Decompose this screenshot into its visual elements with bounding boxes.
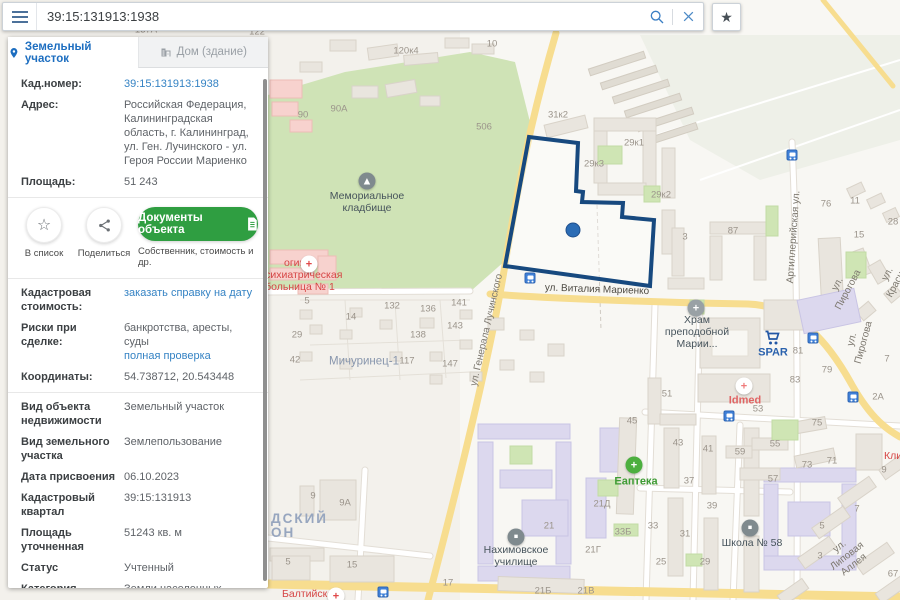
add-to-list-label: В список [25,248,63,259]
field-value-text: Земли населенных пунктов [124,582,255,588]
field-value: Земли населенных пунктов [118,582,255,588]
field-value-text: Землепользование [124,435,255,449]
spar-cart-icon[interactable] [764,330,781,347]
field-value-text: Российская Федерация, Калининградская об… [124,98,255,168]
field-value: Учтенный [118,561,255,575]
field-label: Площадь: [21,175,118,189]
field-row: Кад.номер:39:15:131913:1938 [8,70,268,91]
panel-scrollbar[interactable] [263,79,267,581]
field-value: Землепользование [118,435,255,463]
field-value: заказать справку на дату [118,286,255,314]
field-label: Категория земель [21,582,118,588]
add-to-list-button[interactable]: ☆ В список [18,207,70,259]
field-label: Кадастровая стоимость: [21,286,118,314]
clinic-cross-icon[interactable]: + [328,588,345,600]
field-value: 51 243 [118,175,255,189]
field-value-text: Учтенный [124,561,255,575]
monument-icon[interactable]: ▲ [359,173,376,190]
share-icon [86,207,122,243]
church-icon[interactable]: + [688,300,705,317]
field-label: Риски при сделке: [21,321,118,363]
pin-icon [8,47,20,59]
field-value: банкротства, аресты, судыполная проверка [118,321,255,363]
field-value-link[interactable]: заказать справку на дату [124,286,255,300]
tab-building-label: Дом (здание) [177,46,247,58]
field-row: Адрес:Российская Федерация, Калининградс… [8,91,268,168]
field-row: Кадастровый квартал39:15:131913 [8,484,268,519]
pharmacy-cross-icon[interactable]: + [626,457,643,474]
field-value-text: 54.738712, 20.543448 [124,370,255,384]
field-value: 06.10.2023 [118,470,255,484]
field-row: Вид объекта недвижимостиЗемельный участо… [8,393,268,428]
school-icon[interactable]: ■ [742,520,759,537]
main-fields: Кад.номер:39:15:131913:1938Адрес:Российс… [8,70,268,189]
share-label: Поделиться [78,248,130,259]
field-row: Площадь:51 243 [8,168,268,189]
field-row: Вид земельного участкаЗемлепользование [8,428,268,463]
search-bar [2,2,704,31]
document-icon [247,217,258,231]
tab-building[interactable]: Дом (здание) [138,37,269,68]
field-label: Статус [21,561,118,575]
search-input[interactable] [37,9,642,24]
field-row: Категория земельЗемли населенных пунктов [8,575,268,588]
field-row: Площадь уточненная51243 кв. м [8,519,268,554]
app: 137А122120к4109090А31к250629к129к329к287… [0,0,900,600]
menu-icon[interactable] [3,3,37,30]
share-button[interactable]: Поделиться [78,207,130,259]
building-icon [160,46,172,58]
field-value: Российская Федерация, Калининградская об… [118,98,255,168]
actions-row: ☆ В список Поделиться Документы объекта … [8,198,268,270]
tab-land-parcel-label: Земельный участок [25,41,138,65]
field-value: Земельный участок [118,400,255,428]
field-row: СтатусУчтенный [8,554,268,575]
attribute-fields: Вид объекта недвижимостиЗемельный участо… [8,393,268,588]
tab-land-parcel[interactable]: Земельный участок [8,37,138,68]
hospital-cross-icon[interactable]: + [301,256,318,273]
field-value-text: 06.10.2023 [124,470,255,484]
star-outline-icon: ☆ [26,207,62,243]
field-value-text: банкротства, аресты, суды [124,321,255,349]
field-row: Координаты:54.738712, 20.543448 [8,363,268,384]
field-label: Кадастровый квартал [21,491,118,519]
favorites-star-icon[interactable]: ★ [712,3,741,31]
field-label: Кад.номер: [21,77,118,91]
field-value-text: 51 243 [124,175,255,189]
field-label: Площадь уточненная [21,526,118,554]
legal-fields: Кадастровая стоимость:заказать справку н… [8,279,268,384]
school-icon[interactable]: ■ [508,529,525,546]
field-label: Вид земельного участка [21,435,118,463]
field-label: Вид объекта недвижимости [21,400,118,428]
field-value-link[interactable]: 39:15:131913:1938 [124,77,255,91]
field-value-text: Земельный участок [124,400,255,414]
idmed-cross-icon[interactable]: + [736,378,753,395]
field-row: Риски при сделке:банкротства, аресты, су… [8,314,268,363]
field-label: Дата присвоения [21,470,118,484]
field-value: 54.738712, 20.543448 [118,370,255,384]
field-value: 51243 кв. м [118,526,255,554]
field-value: 39:15:131913 [118,491,255,519]
object-documents-caption: Собственник, стоимость и др. [138,246,258,268]
clear-search-icon[interactable] [673,3,703,30]
field-row: Дата присвоения06.10.2023 [8,463,268,484]
object-documents-button[interactable]: Документы объекта Собственник, стоимость… [138,207,258,268]
field-value-text: 39:15:131913 [124,491,255,505]
field-value: 39:15:131913:1938 [118,77,255,91]
field-label: Адрес: [21,98,118,168]
search-icon[interactable] [642,3,672,30]
field-label: Координаты: [21,370,118,384]
object-documents-label: Документы объекта [138,212,241,236]
field-value-text: 51243 кв. м [124,526,255,540]
field-value-link[interactable]: полная проверка [124,349,255,363]
object-info-panel: Земельный участок Дом (здание) Кад.номер… [8,37,268,588]
field-row: Кадастровая стоимость:заказать справку н… [8,279,268,314]
